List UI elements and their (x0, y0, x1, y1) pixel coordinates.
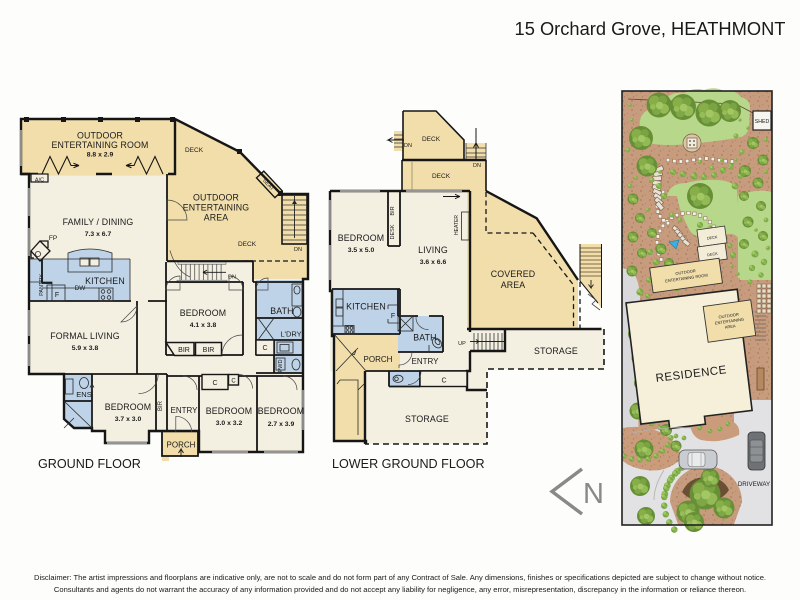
svg-text:DN: DN (404, 143, 412, 149)
svg-text:DECK: DECK (185, 147, 204, 154)
svg-text:15 Orchard Grove, HEATHMONT: 15 Orchard Grove, HEATHMONT (515, 18, 786, 39)
svg-text:BATH: BATH (413, 333, 436, 343)
svg-text:C: C (262, 345, 267, 352)
svg-text:DN: DN (228, 275, 236, 281)
svg-text:3.0 x 3.2: 3.0 x 3.2 (216, 420, 243, 427)
svg-text:Consultants and agents do not: Consultants and agents do not warrant th… (54, 585, 746, 594)
svg-text:BEDROOM: BEDROOM (105, 402, 152, 412)
svg-text:N: N (583, 478, 604, 510)
svg-text:GROUND FLOOR: GROUND FLOOR (38, 457, 141, 471)
svg-text:L'DRY: L'DRY (280, 330, 301, 339)
svg-text:BIR: BIR (390, 206, 396, 215)
svg-text:BATH: BATH (270, 306, 293, 316)
svg-text:DRIVEWAY: DRIVEWAY (738, 481, 770, 488)
svg-text:C: C (212, 380, 217, 387)
svg-text:7.3 x 6.7: 7.3 x 6.7 (85, 231, 112, 238)
svg-text:BEDROOM: BEDROOM (258, 406, 305, 416)
svg-text:DECK: DECK (422, 136, 441, 143)
svg-text:STORAGE: STORAGE (405, 414, 449, 424)
svg-text:PORCH: PORCH (364, 355, 393, 364)
svg-text:BIR: BIR (158, 400, 164, 411)
svg-text:BEDROOM: BEDROOM (206, 406, 253, 416)
svg-text:4.1 x 3.8: 4.1 x 3.8 (190, 322, 217, 329)
svg-text:DW: DW (75, 285, 87, 292)
svg-text:COVERED: COVERED (491, 269, 536, 279)
svg-text:F: F (391, 313, 395, 320)
svg-text:A/C: A/C (35, 178, 44, 184)
svg-text:ENTRY: ENTRY (171, 406, 199, 415)
svg-text:PANTRY: PANTRY (39, 274, 45, 296)
svg-text:ENTRY: ENTRY (412, 357, 440, 366)
svg-text:DN: DN (294, 247, 302, 253)
svg-text:3.6 x 6.6: 3.6 x 6.6 (420, 259, 447, 266)
svg-text:ENTERTAINING: ENTERTAINING (183, 203, 249, 213)
svg-text:AREA: AREA (501, 280, 526, 290)
svg-text:C: C (441, 378, 446, 385)
svg-text:2.7 x 3.9: 2.7 x 3.9 (268, 421, 295, 428)
svg-text:FORMAL LIVING: FORMAL LIVING (50, 331, 120, 341)
svg-text:DN: DN (473, 163, 481, 169)
svg-text:BEDROOM: BEDROOM (338, 233, 385, 243)
svg-text:3.5 x 5.0: 3.5 x 5.0 (348, 247, 375, 254)
svg-text:BEDROOM: BEDROOM (180, 308, 227, 318)
svg-text:8.8 x 2.9: 8.8 x 2.9 (87, 152, 114, 159)
svg-text:BIR: BIR (178, 347, 190, 354)
svg-text:AREA: AREA (204, 213, 229, 223)
svg-text:5.9 x 3.8: 5.9 x 3.8 (72, 345, 99, 352)
svg-text:LIVING: LIVING (418, 245, 448, 255)
svg-text:DECK: DECK (432, 173, 451, 180)
svg-text:ENS: ENS (76, 390, 91, 399)
svg-text:DECK: DECK (238, 241, 257, 248)
svg-text:FP: FP (49, 235, 57, 242)
svg-text:BIR: BIR (203, 347, 215, 354)
svg-text:UP: UP (458, 341, 466, 347)
svg-text:KITCHEN: KITCHEN (85, 276, 125, 286)
svg-text:SHED: SHED (755, 119, 770, 125)
svg-text:STORAGE: STORAGE (534, 346, 578, 356)
svg-text:FAMILY / DINING: FAMILY / DINING (63, 217, 134, 227)
svg-text:KITCHEN: KITCHEN (346, 302, 386, 312)
svg-text:PWD: PWD (278, 360, 284, 373)
svg-text:LOWER GROUND FLOOR: LOWER GROUND FLOOR (332, 457, 485, 471)
svg-text:F: F (55, 292, 59, 299)
svg-text:3.7 x 3.0: 3.7 x 3.0 (115, 416, 142, 423)
svg-text:ENTERTAINING ROOM: ENTERTAINING ROOM (51, 140, 148, 150)
svg-text:Disclaimer: The artist impress: Disclaimer: The artist impressions and f… (34, 573, 766, 582)
svg-text:OUTDOOR: OUTDOOR (193, 193, 239, 203)
svg-text:DESK: DESK (390, 224, 396, 239)
svg-text:HEATER: HEATER (454, 215, 460, 235)
svg-text:C: C (231, 379, 236, 385)
